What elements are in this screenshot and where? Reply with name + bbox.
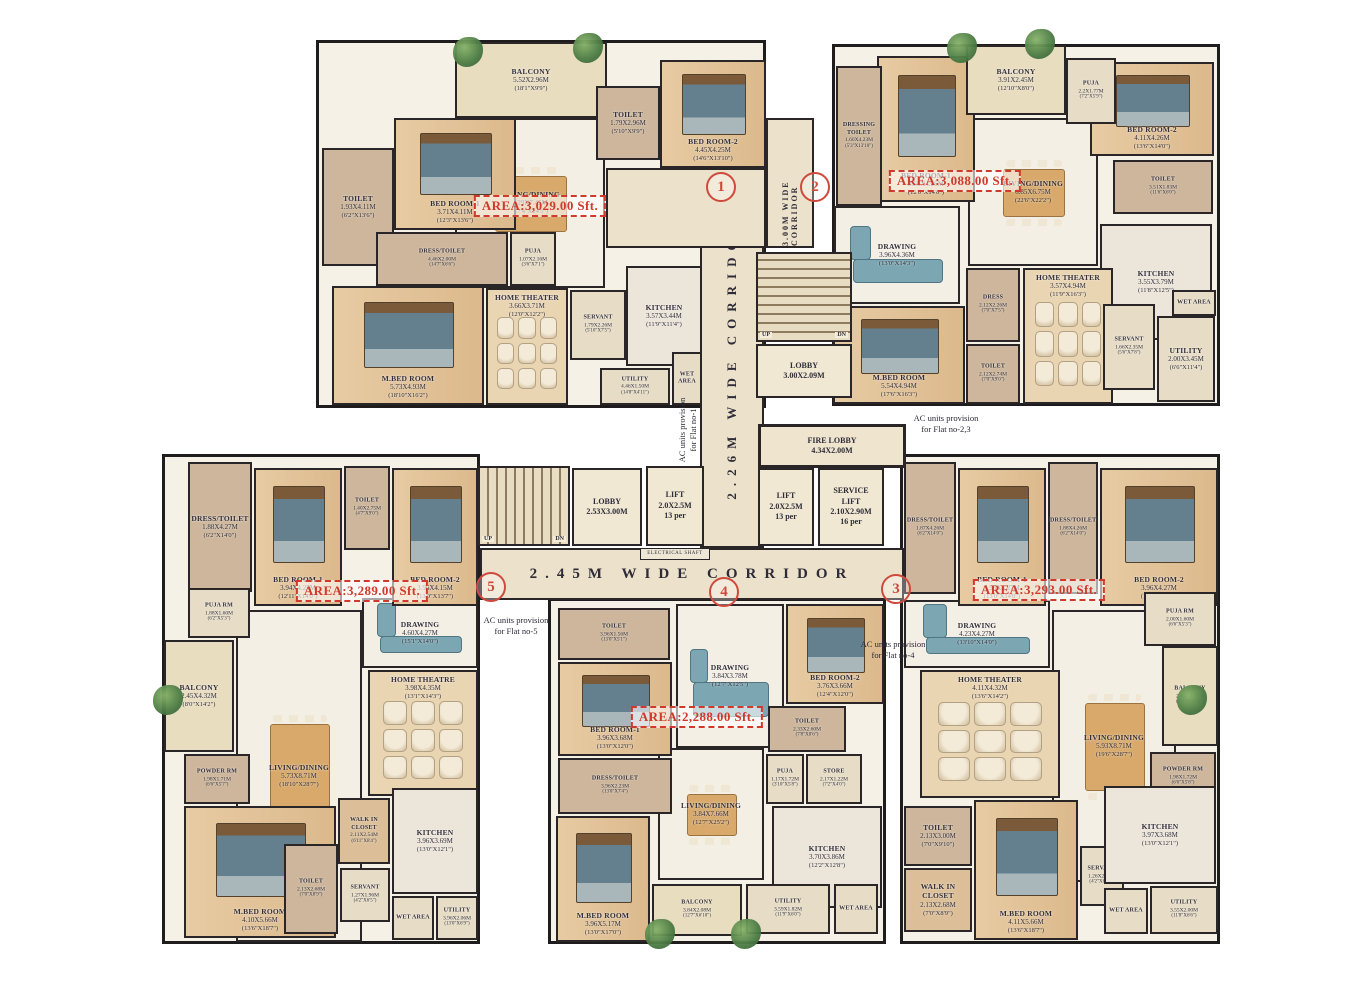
bed-furniture — [861, 319, 940, 374]
room-puja-flat2: PUJA2.2X1.77M(7'2"X5'9") — [1066, 58, 1116, 124]
plant-icon — [645, 919, 675, 949]
area-label-4: AREA:2,288.00 Sft. — [631, 706, 763, 728]
theater-seat — [1082, 361, 1101, 387]
room-label: DRAWING3.84X3.78M(12'7"X12'5") — [678, 663, 782, 689]
room-puja-rm-flat3: PUJA RM2.00X1.60M(6'6"X5'3") — [1144, 592, 1216, 646]
bed-furniture — [898, 75, 956, 157]
stairs-top: UPDN — [756, 252, 852, 342]
room-servant-flat1: SERVANT1.79X2.26M(5'10"X7'5") — [570, 290, 626, 360]
room-label: SERVANT1.79X2.26M(5'10"X7'5") — [572, 315, 624, 336]
room-bed-room-2-flat3: BED ROOM-23.96X4.27M(13'0"X14'0") — [1100, 468, 1218, 606]
theater-seat — [1035, 302, 1054, 328]
room-label: TOILET3.96X1.56M(13'0"X5'1") — [560, 624, 668, 645]
room-label: POWDER RM1.98X1.72M(6'6"X5'8") — [1152, 767, 1214, 788]
room-label: TOILET2.12X2.74M(7'0"X9'0") — [968, 364, 1018, 385]
theater-seat — [518, 317, 535, 338]
seats-furniture — [497, 317, 556, 389]
room-dress-toilet-flat1: DRESS/TOILET4.46X2.00M(14'7"X6'6") — [376, 232, 508, 286]
area-label-5: AREA:3,293.00 Sft. — [973, 579, 1105, 601]
room-label: LIVING/DINING3.84X7.66M(12'7"X25'2") — [660, 801, 762, 827]
theater-seat — [411, 729, 435, 752]
lobby-left-label: 2.53X3.00M — [586, 507, 627, 517]
room-kitchen-flat5: KITCHEN3.96X3.69M(13'0"X12'1") — [392, 788, 478, 894]
theater-seat — [974, 702, 1006, 726]
room-label: DRAWING4.60X4.27M(15'1"X14'0") — [364, 620, 476, 646]
bed-furniture — [1116, 75, 1190, 127]
room-label: UTILITY2.00X3.45M(6'6"X11'4") — [1159, 346, 1213, 372]
room-label: BED ROOM-24.11X4.26M(13'6"X14'0") — [1092, 125, 1212, 151]
corridor-3-00m-label: 3.00M WIDE CORRIDOR — [781, 120, 799, 246]
room-puja-rm-flat5: PUJA RM1.88X1.60M(6'2"X5'3") — [188, 588, 250, 638]
room-wet-area-flat4: WET AREA — [834, 884, 878, 934]
room-label: WET AREA — [394, 914, 432, 922]
service-lift-label: 16 per — [840, 517, 862, 527]
bed-furniture — [410, 486, 461, 563]
room-servant-flat5: SERVANT1.27X1.96M(4'2"X6'5") — [340, 868, 390, 922]
room-label: HOME THEATER4.11X4.32M(13'6"X14'2") — [922, 675, 1058, 701]
flat-number-marker-1: 1 — [706, 172, 736, 202]
bed-furniture — [576, 833, 632, 903]
theater-seat — [540, 343, 557, 364]
room-label: HOME THEATER3.66X3.71M(12'0"X12'2") — [488, 293, 566, 319]
room-label: M.BED ROOM4.11X5.66M(13'6"X18'7") — [976, 909, 1076, 935]
theater-seat — [497, 368, 514, 389]
bed-furniture — [1125, 486, 1195, 563]
lift-1-label: 2.0X2.5M — [658, 501, 691, 511]
theater-seat — [1010, 702, 1042, 726]
dining-furniture — [1085, 703, 1145, 791]
dining-furniture — [687, 794, 738, 837]
ac-note-4: AC units provisionfor Flat no-4 — [861, 639, 926, 661]
room-home-theater-flat3: HOME THEATER4.11X4.32M(13'6"X14'2") — [920, 670, 1060, 798]
theater-seat — [411, 701, 435, 724]
theater-seat — [383, 756, 407, 779]
room-wet-area-flat3: WET AREA — [1104, 888, 1148, 934]
sofa-furniture — [380, 636, 463, 654]
room-label: SERVANT1.27X1.96M(4'2"X6'5") — [342, 885, 388, 906]
lift-2-label: LIFT — [777, 491, 796, 501]
room-label: DRESS/TOILET1.87X4.26M(6'2"X14'0") — [906, 518, 954, 539]
ac-note-3: AC units provisionfor Flat no-5 — [484, 615, 549, 637]
room-label: BED ROOM-23.76X3.66M(12'4"X12'0") — [788, 673, 882, 699]
room-drawing-flat5: DRAWING4.60X4.27M(15'1"X14'0") — [362, 598, 478, 668]
room-label: WET AREA — [1106, 907, 1146, 915]
bed-furniture — [273, 486, 325, 563]
ac-note-line: AC units provision — [914, 413, 979, 424]
room-m-bed-room-flat2: M.BED ROOM5.54X4.94M(17'6"X16'3") — [833, 306, 965, 404]
room-label: LIVING/DINING5.73X8.71M(18'10"X28'7") — [238, 763, 360, 789]
theater-seat — [938, 730, 970, 754]
room-wet-area-flat2: WET AREA — [1172, 290, 1216, 316]
room-label: WALK IN CLOSET2.13X2.68M(7'0"X8'9") — [906, 882, 970, 918]
room-label: UTILITY3.55X2.00M(11'8"X6'6") — [1152, 900, 1216, 921]
room-store-flat4: STORE2.17X1.22M(7'2"X4'0") — [806, 754, 862, 804]
theater-seat — [1058, 302, 1077, 328]
ac-note-line: for Flat no-2,3 — [914, 424, 979, 435]
room-wet-area-flat5: WET AREA — [392, 896, 434, 940]
room-powder-rm-flat5: POWDER RM1.98X1.71M(6'6"X5'7") — [184, 754, 250, 804]
room-toilet-flat3: TOILET2.13X3.00M(7'0"X9'10") — [904, 806, 972, 866]
theater-seat — [1010, 757, 1042, 781]
fire-lobby: FIRE LOBBY4.34X2.00M — [758, 424, 906, 468]
ac-note-line: AC units provision — [861, 639, 926, 650]
ac-note-line: AC units provision — [677, 398, 688, 463]
room-living-dining-flat2: LIVING/DINING6.85X6.75M(22'6"X22'2") — [968, 118, 1098, 266]
room-label: HOME THEATER3.57X4.94M(11'9"X16'3") — [1025, 273, 1111, 299]
room-label: STORE2.17X1.22M(7'2"X4'0") — [808, 769, 860, 790]
seats-furniture — [1035, 302, 1100, 387]
room-label: PUJA RM2.00X1.60M(6'6"X5'3") — [1146, 609, 1214, 630]
theater-seat — [938, 757, 970, 781]
seats-furniture — [938, 702, 1041, 781]
room-label: DRAWING3.96X4.36M(13'0"X14'3") — [836, 242, 958, 268]
room-label: M.BED ROOM5.54X4.94M(17'6"X16'3") — [835, 373, 963, 399]
lift-2-label: 13 per — [775, 512, 797, 522]
room-label: KITCHEN3.97X3.68M(13'0"X12'1") — [1106, 822, 1214, 848]
room-label: M.BED ROOM3.96X5.17M(13'0"X17'0") — [558, 911, 648, 937]
room-walk-in-closet-flat3: WALK IN CLOSET2.13X2.68M(7'0"X8'9") — [904, 868, 972, 932]
service-lift: SERVICELIFT2.10X2.90M16 per — [818, 468, 884, 546]
room-utility-flat5: UTILITY3.96X2.06M(13'0"X6'9") — [436, 896, 478, 940]
room-drawing-flat3: DRAWING4.23X4.27M(13'10"X14'0") — [904, 600, 1050, 668]
room-servant-flat2: SERVANT1.66X2.35M(5'6"X7'8") — [1103, 304, 1155, 390]
room-home-theater-flat1: HOME THEATER3.66X3.71M(12'0"X12'2") — [486, 288, 568, 405]
service-lift-label: SERVICE — [833, 486, 868, 496]
room-bed-room-2-flat1: BED ROOM-24.45X4.25M(14'6"X13'10") — [660, 60, 766, 168]
room-kitchen-flat3: KITCHEN3.97X3.68M(13'0"X12'1") — [1104, 786, 1216, 884]
room-label: UTILITY4.46X1.50M(14'8"X4'11") — [602, 376, 668, 397]
floor-plan: LIVING/DINING5.29X7.45M(17'4"X24'5")M.BE… — [0, 0, 1350, 1000]
room-label: BED ROOM-13.96X3.68M(13'0"X12'0") — [560, 725, 670, 751]
room-label: M.BED ROOM5.73X4.93M(18'10"X16'2") — [334, 374, 482, 400]
room-puja-flat1: PUJA1.07X2.16M(3'6"X7'1") — [510, 232, 556, 286]
room-label: TOILET2.13X2.68M(7'0"X8'9") — [286, 879, 336, 900]
lobby-left: LOBBY2.53X3.00M — [572, 468, 642, 546]
room-dress-toilet-flat5: DRESS/TOILET1.88X4.27M(6'2"X14'0") — [188, 462, 252, 592]
electrical-shaft: ELECTRICAL SHAFT — [640, 548, 710, 560]
flat-number-marker-2: 2 — [800, 172, 830, 202]
room-label: BALCONY3.91X2.45M(12'10"X8'0") — [968, 67, 1064, 93]
room-kitchen-flat1: KITCHEN3.57X3.44M(11'9"X11'4") — [626, 266, 702, 366]
theater-seat — [439, 701, 463, 724]
ac-note-line: for Flat no-1 — [688, 398, 699, 463]
room-label: WALK IN CLOSET2.11X2.54M(6'11"X8'4") — [340, 817, 388, 845]
stairs-dn-label: DN — [553, 536, 566, 542]
stairs-dn-label: DN — [835, 332, 848, 338]
theater-seat — [497, 317, 514, 338]
room-puja-flat4: PUJA1.17X1.72M(3'10"X5'8") — [766, 754, 804, 804]
theater-seat — [497, 343, 514, 364]
room-dress-flat2: DRESS2.12X2.26M(7'0"X7'5") — [966, 268, 1020, 342]
stairs-up-label: UP — [482, 536, 494, 542]
theater-seat — [439, 729, 463, 752]
room-label: UTILITY3.96X2.06M(13'0"X6'9") — [438, 908, 476, 929]
theater-seat — [1058, 361, 1077, 387]
lift-1: LIFT2.0X2.5M13 per — [646, 466, 704, 546]
room-label: PUJA1.07X2.16M(3'6"X7'1") — [512, 249, 554, 270]
corridor-spur — [606, 168, 766, 248]
corridor-2-26m-label: 2.26M WIDE CORRIDOR — [724, 217, 740, 500]
ac-note-2: AC units provisionfor Flat no-2,3 — [914, 413, 979, 435]
room-dress-toilet-flat4: DRESS/TOILET3.96X2.23M(13'0"X7'4") — [558, 758, 672, 814]
lobby-top-label: 3.00X2.09M — [783, 371, 824, 381]
room-dress-toilet-flat3: DRESS/TOILET1.87X4.26M(6'2"X14'0") — [904, 462, 956, 594]
area-label-2: AREA:3,088.00 Sft. — [889, 170, 1021, 192]
seats-furniture — [383, 701, 464, 779]
theater-seat — [1082, 302, 1101, 328]
theater-seat — [383, 701, 407, 724]
theater-seat — [1035, 361, 1054, 387]
room-label: DRAWING4.23X4.27M(13'10"X14'0") — [906, 621, 1048, 647]
room-label: UTILITY3.59X1.82M(11'9"X6'0") — [748, 899, 828, 920]
room-label: KITCHEN3.70X3.86M(12'2"X12'8") — [774, 844, 880, 870]
room-m-bed-room-flat4: M.BED ROOM3.96X5.17M(13'0"X17'0") — [556, 816, 650, 942]
ac-note-line: AC units provision — [484, 615, 549, 626]
room-label: PUJA2.2X1.77M(7'2"X5'9") — [1068, 81, 1114, 102]
room-utility-flat3: UTILITY3.55X2.00M(11'8"X6'6") — [1150, 886, 1218, 934]
room-label: WET AREA — [836, 905, 876, 913]
corridor-2-45m-label: 2.45M WIDE CORRIDOR — [530, 566, 855, 583]
room-home-theater-flat2: HOME THEATER3.57X4.94M(11'9"X16'3") — [1023, 268, 1113, 404]
room-walk-in-closet-flat5: WALK IN CLOSET2.11X2.54M(6'11"X8'4") — [338, 798, 390, 864]
theater-seat — [1082, 331, 1101, 357]
room-toilet-flat2: TOILET2.12X2.74M(7'0"X9'0") — [966, 344, 1020, 404]
bed-furniture — [420, 133, 493, 195]
service-lift-label: 2.10X2.90M — [830, 507, 871, 517]
room-living-dining-flat4: LIVING/DINING3.84X7.66M(12'7"X25'2") — [658, 748, 764, 880]
room-label: TOILET3.51X1.83M(11'6"X6'0") — [1115, 177, 1211, 198]
lift-2: LIFT2.0X2.5M13 per — [758, 468, 814, 546]
room-label: HOME THEATRE3.98X4.35M(13'1"X14'3") — [370, 675, 476, 701]
ac-note-1: AC units provisionfor Flat no-1 — [677, 398, 699, 463]
service-lift-label: LIFT — [842, 497, 861, 507]
theater-seat — [974, 757, 1006, 781]
room-label: WET AREA — [674, 371, 700, 386]
lobby-top-label: LOBBY — [790, 361, 818, 371]
room-utility-flat1: UTILITY4.46X1.50M(14'8"X4'11") — [600, 368, 670, 405]
theater-seat — [540, 317, 557, 338]
room-label: TOILET1.79X2.96M(5'10"X9'9") — [598, 110, 658, 136]
room-dressing-toilet-flat2: DRESSING TOILET1.60X4.23M(5'3"X13'10") — [836, 66, 882, 206]
lift-2-label: 2.0X2.5M — [769, 502, 802, 512]
room-label: DRESS/TOILET1.88X4.26M(6'2"X14'0") — [1050, 518, 1096, 539]
room-label: TOILET1.40X2.75M(4'7"X9'0") — [346, 498, 388, 519]
room-toilet-flat1: TOILET1.79X2.96M(5'10"X9'9") — [596, 86, 660, 160]
room-m-bed-room-flat1: M.BED ROOM5.73X4.93M(18'10"X16'2") — [332, 286, 484, 405]
ac-note-line: for Flat no-4 — [861, 650, 926, 661]
bed-furniture — [977, 486, 1029, 563]
room-home-theatre-flat5: HOME THEATRE3.98X4.35M(13'1"X14'3") — [368, 670, 478, 796]
room-label: BALCONY5.52X2.96M(18'1"X9'9") — [457, 67, 605, 93]
theater-seat — [411, 756, 435, 779]
room-m-bed-room-flat3: M.BED ROOM4.11X5.66M(13'6"X18'7") — [974, 800, 1078, 940]
room-dress-toilet-flat3: DRESS/TOILET1.88X4.26M(6'2"X14'0") — [1048, 462, 1098, 594]
flat-number-marker-3: 3 — [881, 574, 911, 604]
stairs-up-label: UP — [760, 332, 772, 338]
room-label: BALCONY3.84X2.08M(12'7"X6'10") — [654, 900, 740, 921]
stairs-left: UPDN — [478, 466, 570, 546]
room-toilet-flat4: TOILET2.33X2.60M(7'8"X8'6") — [768, 706, 846, 752]
theater-seat — [518, 343, 535, 364]
theater-seat — [1058, 331, 1077, 357]
lift-1-label: LIFT — [666, 490, 685, 500]
lobby-top: LOBBY3.00X2.09M — [756, 344, 852, 398]
room-label: DRESSING TOILET1.60X4.23M(5'3"X13'10") — [838, 122, 880, 150]
flat-number-marker-4: 4 — [709, 577, 739, 607]
room-toilet-flat5: TOILET1.40X2.75M(4'7"X9'0") — [344, 466, 390, 550]
theater-seat — [1035, 331, 1054, 357]
room-label: DRESS2.12X2.26M(7'0"X7'5") — [968, 295, 1018, 316]
room-label: TOILET1.93X4.11M(6'2"X13'6") — [324, 194, 392, 220]
sofa-furniture — [926, 637, 1030, 654]
room-toilet-flat5: TOILET2.13X2.68M(7'0"X8'9") — [284, 844, 338, 934]
room-label: DRESS/TOILET4.46X2.00M(14'7"X6'6") — [378, 249, 506, 270]
bed-furniture — [807, 618, 865, 674]
room-label: POWDER RM1.98X1.71M(6'6"X5'7") — [186, 769, 248, 790]
bed-furniture — [364, 302, 455, 368]
room-utility-flat2: UTILITY2.00X3.45M(6'6"X11'4") — [1157, 316, 1215, 402]
bed-furniture — [996, 818, 1058, 896]
theater-seat — [1010, 730, 1042, 754]
bed-furniture — [682, 74, 745, 134]
room-label: PUJA1.17X1.72M(3'10"X5'8") — [768, 769, 802, 790]
sofa-furniture — [853, 259, 943, 284]
room-label: PUJA RM1.88X1.60M(6'2"X5'3") — [190, 603, 248, 624]
fire-lobby-label: 4.34X2.00M — [811, 446, 852, 456]
room-drawing-flat2: DRAWING3.96X4.36M(13'0"X14'3") — [834, 206, 960, 304]
room-label: DRESS/TOILET3.96X2.23M(13'0"X7'4") — [560, 776, 670, 797]
theater-seat — [383, 729, 407, 752]
room-label: TOILET2.33X2.60M(7'8"X8'6") — [770, 719, 844, 740]
lobby-left-label: LOBBY — [593, 497, 621, 507]
electrical-shaft-label: ELECTRICAL SHAFT — [647, 551, 702, 558]
room-balcony-flat2: BALCONY3.91X2.45M(12'10"X8'0") — [966, 45, 1066, 115]
room-label: TOILET2.13X3.00M(7'0"X9'10") — [906, 823, 970, 849]
ac-note-line: for Flat no-5 — [484, 626, 549, 637]
lift-1-label: 13 per — [664, 511, 686, 521]
room-toilet-flat4: TOILET3.96X1.56M(13'0"X5'1") — [558, 608, 670, 660]
room-label: BED ROOM-24.45X4.25M(14'6"X13'10") — [662, 137, 764, 163]
room-toilet-flat2: TOILET3.51X1.83M(11'6"X6'0") — [1113, 160, 1213, 214]
theater-seat — [540, 368, 557, 389]
room-label: SERVANT1.66X2.35M(5'6"X7'8") — [1105, 337, 1153, 358]
flat-number-marker-5: 5 — [476, 572, 506, 602]
theater-seat — [974, 730, 1006, 754]
room-label: KITCHEN3.96X3.69M(13'0"X12'1") — [394, 828, 476, 854]
room-label: WET AREA — [1174, 299, 1214, 307]
theater-seat — [518, 368, 535, 389]
area-label-1: AREA:3,029.00 Sft. — [474, 195, 606, 217]
plant-icon — [731, 919, 761, 949]
area-label-3: AREA:3,289.00 Sft. — [296, 580, 428, 602]
theater-seat — [439, 756, 463, 779]
fire-lobby-label: FIRE LOBBY — [807, 436, 856, 446]
room-label: KITCHEN3.57X3.44M(11'9"X11'4") — [628, 303, 700, 329]
room-label: DRESS/TOILET1.88X4.27M(6'2"X14'0") — [190, 514, 250, 540]
theater-seat — [938, 702, 970, 726]
